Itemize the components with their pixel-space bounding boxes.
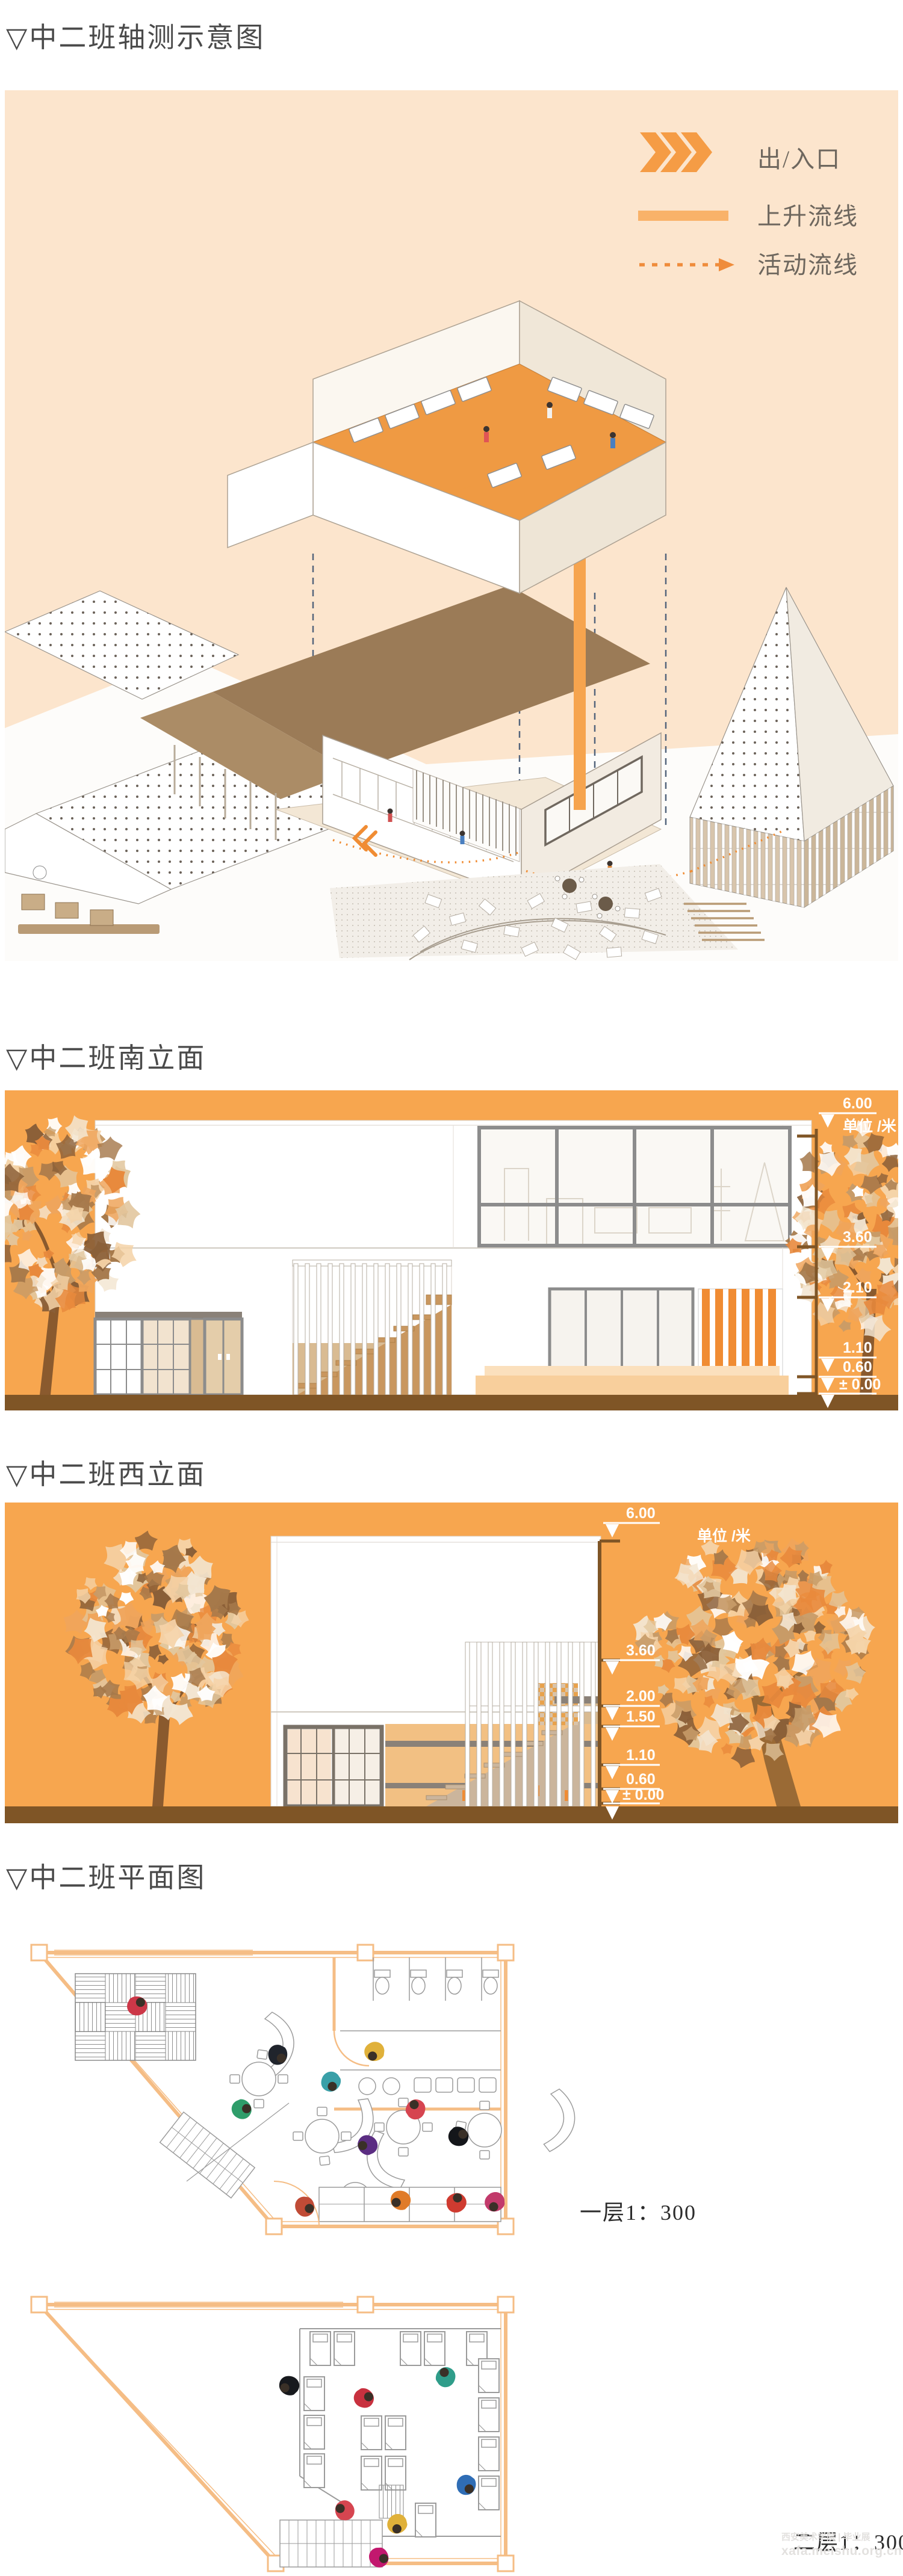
- west-unit-label: 单位 /米: [697, 1527, 751, 1545]
- south-level-0.60: 0.60: [843, 1359, 872, 1376]
- upper-floor-volume: [228, 301, 666, 593]
- west-level-1.10: 1.10: [626, 1747, 656, 1764]
- south-door-assembly: [95, 1312, 242, 1395]
- west-tree-left: [63, 1527, 250, 1806]
- second-floor-plan: [6, 2287, 578, 2574]
- entry-step-upper: [485, 1366, 780, 1376]
- plan1-play-mats: [75, 1974, 196, 2060]
- south-level-6.00: 6.00: [843, 1095, 872, 1112]
- entry-step-lower: [476, 1376, 789, 1395]
- plan1-cubbies: [319, 2187, 501, 2222]
- south-elevation-panel: 6.00 单位 /米 3.60 2.10 1.10 0.60 ± 0.00: [5, 1090, 898, 1410]
- west-level-3.60: 3.60: [626, 1642, 656, 1659]
- axon-section-title: ▽中二班轴测示意图: [6, 16, 265, 55]
- south-level-3.60: 3.60: [843, 1229, 872, 1246]
- south-level-2.10: 2.10: [843, 1279, 872, 1296]
- south-unit-label: 单位 /米: [843, 1117, 897, 1135]
- bench: [539, 2087, 578, 2155]
- south-elevation-title: ▽中二班南立面: [6, 1036, 206, 1076]
- activity-line-icon: [639, 258, 734, 271]
- west-level-1.50: 1.50: [626, 1708, 656, 1725]
- rising-flow-ribbon: [574, 527, 586, 810]
- west-door-assembly: [285, 1727, 382, 1806]
- west-tree-right: [627, 1533, 876, 1806]
- watermark-logo-text: 西安美术学院 | 毕业展: [781, 2532, 902, 2544]
- south-level-1.10: 1.10: [843, 1339, 872, 1356]
- west-elevation-panel: 6.00 单位 /米 3.60 2.00 1.50 1.10 0.60 ± 0.…: [5, 1503, 898, 1823]
- west-elevation-title: ▽中二班西立面: [6, 1453, 206, 1492]
- orange-slat-panel: [698, 1289, 783, 1377]
- west-dimension-rail: 6.00 单位 /米 3.60 2.00 1.50 1.10 0.60 ± 0.…: [600, 1505, 751, 1823]
- legend-entrance-label: 出/入口: [757, 146, 841, 173]
- entrance-chevrons-icon: [640, 132, 712, 172]
- rising-line-icon: [638, 211, 728, 221]
- axonometric-panel: 出/入口 上升流线 活动流线: [5, 90, 898, 961]
- context-pyramid-right: [690, 587, 893, 907]
- west-level-2.00: 2.00: [626, 1688, 656, 1705]
- west-level-0.60: 0.60: [626, 1771, 656, 1788]
- legend-rising-label: 上升流线: [757, 203, 858, 230]
- plan-section-title: ▽中二班平面图: [6, 1856, 206, 1895]
- first-floor-plan: [6, 1929, 578, 2241]
- presentation-board: ▽中二班轴测示意图 ▽中二班南立面 ▽中二班西立面 ▽中二班平面图: [0, 0, 903, 2576]
- legend: 出/入口 上升流线 活动流线: [638, 132, 858, 279]
- legend-activity-label: 活动流线: [757, 252, 858, 279]
- west-level-0.00: ± 0.00: [622, 1787, 664, 1803]
- west-ground: [5, 1806, 898, 1823]
- first-floor-label: 一层1：300: [580, 2195, 697, 2226]
- west-building: [271, 1536, 601, 1806]
- south-stair-screen: [293, 1260, 451, 1395]
- west-level-6.00: 6.00: [626, 1505, 656, 1522]
- south-elevation-drawing: 6.00 单位 /米 3.60 2.10 1.10 0.60 ± 0.00: [5, 1090, 898, 1410]
- south-building: [95, 1120, 811, 1395]
- axonometric-drawing: 出/入口 上升流线 活动流线: [5, 90, 898, 961]
- west-elevation-drawing: 6.00 单位 /米 3.60 2.00 1.50 1.10 0.60 ± 0.…: [5, 1503, 898, 1823]
- second-floor-plan-drawing: [6, 2287, 578, 2574]
- south-ground: [5, 1395, 898, 1410]
- watermark: 西安美术学院 | 毕业展 xafa.meishu.org.cn: [781, 2532, 902, 2559]
- south-level-0.00: ± 0.00: [839, 1376, 881, 1393]
- watermark-url: xafa.meishu.org.cn: [781, 2544, 902, 2559]
- first-floor-plan-drawing: [6, 1929, 578, 2241]
- south-upper-window: [479, 1128, 790, 1246]
